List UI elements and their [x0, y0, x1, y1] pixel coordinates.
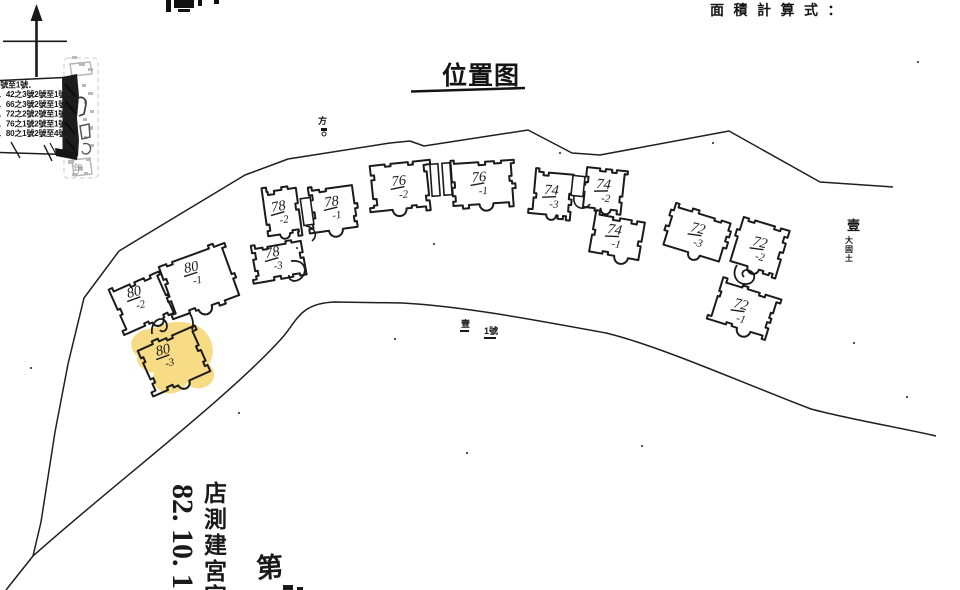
svg-text:3號．66之3號2號至1號: 3號．66之3號2號至1號: [0, 99, 66, 109]
svg-text:1號．72之2號2號至1號: 1號．72之2號2號至1號: [0, 109, 66, 119]
svg-text:年: 年: [73, 162, 83, 175]
svg-text:土: 土: [845, 253, 853, 263]
svg-text:店: 店: [204, 480, 227, 506]
svg-text:測: 測: [204, 506, 227, 532]
svg-text:位置图: 位置图: [442, 61, 520, 90]
svg-text:字: 字: [204, 583, 227, 590]
svg-text:大: 大: [845, 235, 853, 245]
svg-text:-1: -1: [611, 238, 622, 251]
svg-text:固: 固: [845, 245, 853, 254]
svg-text:82. 10. 12: 82. 10. 12: [166, 484, 199, 590]
svg-text:面積計算式：: 面積計算式：: [710, 2, 851, 18]
svg-text:建: 建: [204, 532, 227, 558]
svg-text:5號．80之1號2號至4號: 5號．80之1號2號至4號: [0, 128, 66, 138]
svg-text:1號．42之3號2號至1號: 1號．42之3號2號至1號: [0, 89, 66, 99]
svg-text:2號至1號．: 2號至1號．: [0, 80, 36, 90]
svg-text:第: 第: [255, 551, 284, 584]
svg-text:1號: 1號: [484, 325, 498, 336]
svg-text:方: 方: [318, 115, 327, 126]
svg-text:壹: 壹: [847, 218, 860, 233]
svg-text:-3: -3: [549, 198, 559, 211]
svg-text:-1: -1: [478, 185, 488, 198]
svg-text:壹: 壹: [461, 318, 470, 329]
svg-text:5號．76之1號2號至1號: 5號．76之1號2號至1號: [0, 118, 66, 128]
svg-text:-2: -2: [601, 193, 612, 206]
svg-text:-1: -1: [331, 209, 342, 222]
svg-text:-2: -2: [398, 188, 409, 201]
svg-text:宮: 宮: [204, 558, 227, 584]
